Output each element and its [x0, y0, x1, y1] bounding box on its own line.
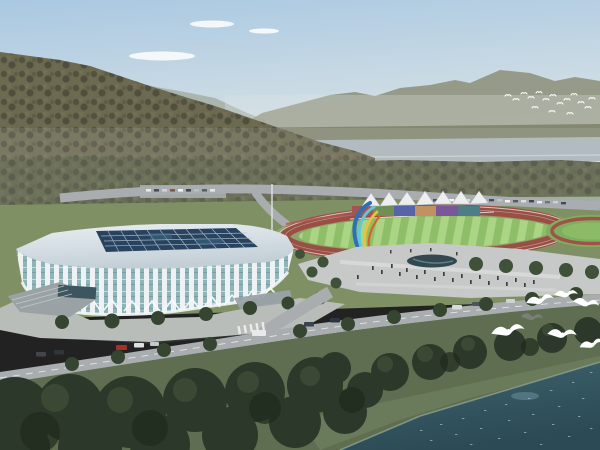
- bus: [252, 330, 266, 336]
- red-car: [116, 345, 127, 350]
- parked-cars-left: [146, 189, 215, 192]
- stadium-aerial-illustration: [0, 0, 600, 450]
- scene-rendering: [0, 0, 600, 450]
- water-reflection: [511, 392, 539, 400]
- reflecting-pool: [407, 255, 457, 268]
